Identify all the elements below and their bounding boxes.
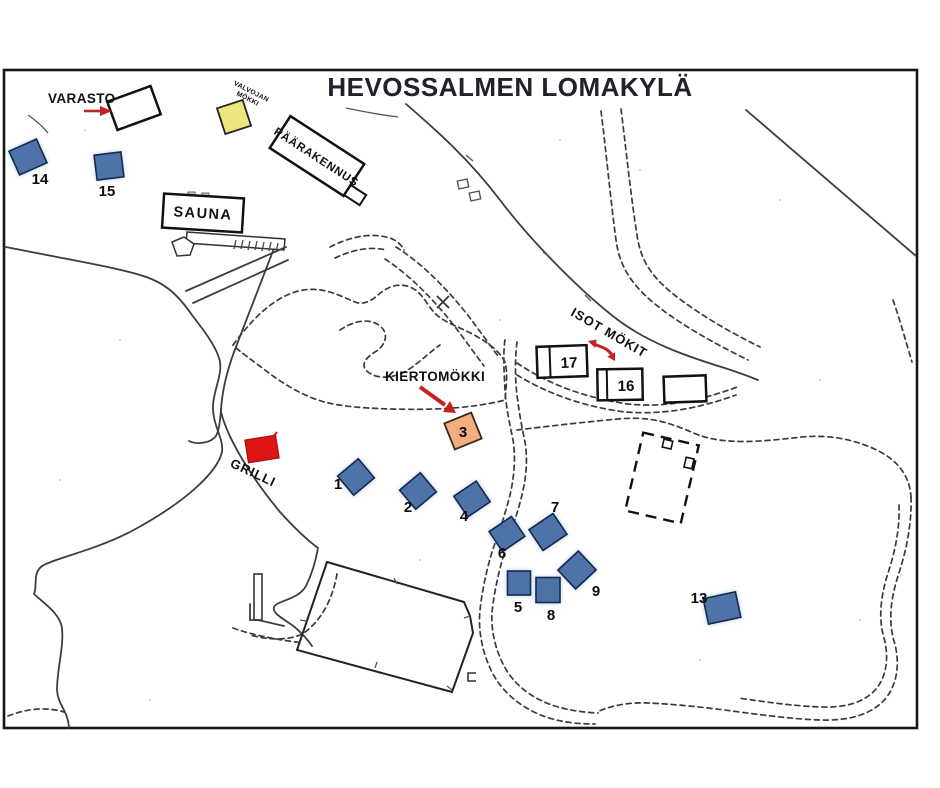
cabin-16-number: 16 [618,378,635,395]
tiny-hut-1 [457,179,468,189]
cabin-7-number: 7 [551,499,559,516]
cabin-2-number: 2 [404,499,412,516]
holiday-village-map: 17 16 [0,0,940,788]
cabin-15-number: 15 [99,183,116,200]
cabin-8-number: 8 [547,607,555,624]
cabin-13-building [703,592,741,624]
cabin-13-number: 13 [691,590,708,607]
cabin-1-number: 1 [334,476,342,493]
cabin-15-building [94,152,124,180]
cabin-17-divider [549,346,550,377]
cabin-16-divider [607,369,608,400]
boat-pier [254,574,262,620]
map-title: HEVOSSALMEN LOMAKYLÄ [327,72,692,102]
cabin-4-number: 4 [460,508,469,525]
dashed-building-bump-2 [684,457,694,469]
cabin-5-number: 5 [514,599,522,616]
cabin-5-building [508,571,531,595]
kiertomokki-label: KIERTOMÖKKI [385,369,485,384]
grilli-building [245,435,279,463]
cabin-8-building [536,578,560,603]
cabin-3-number: 3 [459,424,467,441]
holiday-village-map-page: 17 16 [0,0,940,788]
dashed-building-bump-1 [662,439,673,449]
cabin-17: 17 [536,345,587,378]
cabin-9-number: 9 [592,583,600,600]
cabin-16: 16 [597,369,643,401]
cabin-17-number: 17 [560,354,577,372]
cabin-14-number: 14 [32,171,49,188]
tiny-hut-2 [469,191,480,201]
cabin-6-number: 6 [498,545,506,562]
map-frame [4,70,917,728]
unnumbered-big-cabin [664,375,707,402]
varasto-label: VARASTO [48,91,116,106]
